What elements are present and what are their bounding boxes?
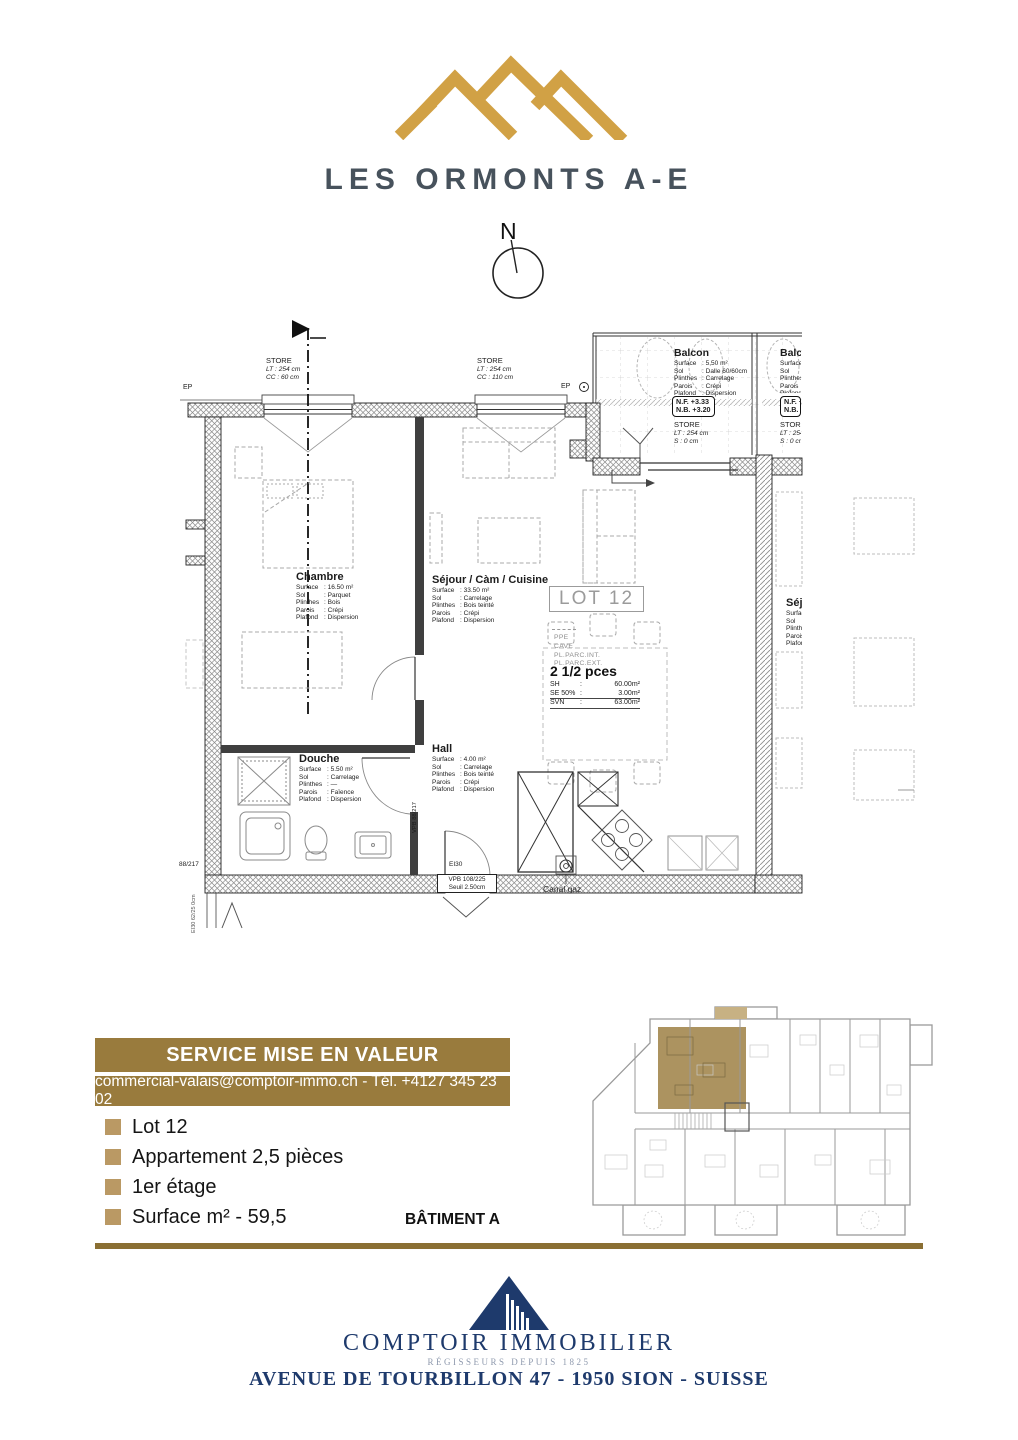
gas-duct-label: Canal gaz — [543, 884, 581, 894]
lot-number-box: LOT 12 — [549, 586, 644, 612]
lot-detail-item: Lot 12 — [105, 1116, 188, 1138]
highlight-balcony — [715, 1007, 747, 1019]
wall-code-left: 88/217 — [179, 861, 199, 868]
room-label-balcon: Balcon Surface5,50 m²SolDalle 60/60cmPli… — [674, 347, 747, 398]
compass-icon — [485, 240, 555, 310]
fire-rating-door: EI30 — [449, 861, 462, 868]
highlight-lot-12 — [658, 1027, 746, 1109]
lot-dashes — [552, 629, 576, 630]
apartment-summary: 2 1/2 pces SH60.00m²SE 50%3.00m²SVN63.00… — [550, 663, 640, 709]
room-label-douche: Douche Surface5.50 m²SolCarrelagePlinthe… — [299, 753, 361, 804]
ep-label-right: EP — [561, 383, 570, 390]
ep-label-left: EP — [183, 384, 192, 391]
bullet-square-icon — [105, 1179, 121, 1195]
entry-door-box: VPB 108/225 Seuil 2.50cm — [437, 874, 497, 893]
store-label-balcony: STORE LT : 254 cm S : 0 cm — [674, 421, 708, 447]
store-label-1: STORE LT : 254 cm CC : 60 cm — [266, 357, 300, 383]
mountains-logo-icon — [393, 52, 637, 140]
store-label-2: STORE LT : 254 cm CC : 110 cm — [477, 357, 513, 383]
company-tagline: RÉGISSEURS DEPUIS 1825 — [0, 1357, 1018, 1367]
level-box: N.F. +3.33N.B. +3.20 — [672, 396, 715, 417]
room-label-sejour: Séjour / Càm / Cuisine Surface33.50 m²So… — [432, 574, 548, 625]
interior-walls — [221, 417, 424, 875]
page-title: LES ORMONTS A-E — [0, 163, 1018, 197]
bullet-square-icon — [105, 1209, 121, 1225]
room-label-hall: Hall Surface4.00 m²SolCarrelagePlinthesB… — [432, 743, 494, 794]
contact-banner[interactable]: commercial-valais@comptoir-immo.ch - Tél… — [95, 1076, 510, 1106]
exterior-walls — [180, 400, 802, 928]
bullet-square-icon — [105, 1119, 121, 1135]
flyer-page: LES ORMONTS A-E N — [0, 0, 1018, 1440]
bullet-square-icon — [105, 1149, 121, 1165]
gold-divider — [95, 1243, 923, 1249]
building-label: BÂTIMENT A — [405, 1211, 500, 1229]
fire-rating-left: EI30 62/25 0cm — [191, 894, 197, 933]
kitchen-fixtures — [518, 772, 738, 884]
room-label-chambre: Chambre Surface16.50 m²SolParquetPlinthe… — [296, 571, 358, 622]
lot-detail-item: Appartement 2,5 pièces — [105, 1146, 343, 1168]
store-label-4-clipped: STORE LT : 254 cm S : 0 cm — [780, 421, 801, 449]
lot-detail-item: 1er étage — [105, 1176, 217, 1198]
floor-plan-drawing — [180, 318, 920, 943]
comptoir-pyramid-icon — [459, 1274, 559, 1332]
company-name: COMPTOIR IMMOBILIER — [0, 1330, 1018, 1357]
lot-detail-item: Surface m² - 59,5 — [105, 1206, 287, 1228]
service-banner: SERVICE MISE EN VALEUR — [95, 1038, 510, 1072]
company-address: AVENUE DE TOURBILLON 47 - 1950 SION - SU… — [0, 1368, 1018, 1391]
room-label-sejour-2-clipped: Séjour / Càm / Cuisine Surface33.50 m²So… — [786, 597, 802, 649]
room-label-balcon-2-clipped: Balcon Surface5,50 m²SolDalle 60/60cmPli… — [780, 347, 801, 393]
building-overview-plan — [575, 1005, 935, 1240]
level-box-2-clipped: N.F. +3.33N.B. +3.20 — [780, 396, 801, 418]
door-code-wall: VPB 88/217 — [412, 802, 418, 833]
